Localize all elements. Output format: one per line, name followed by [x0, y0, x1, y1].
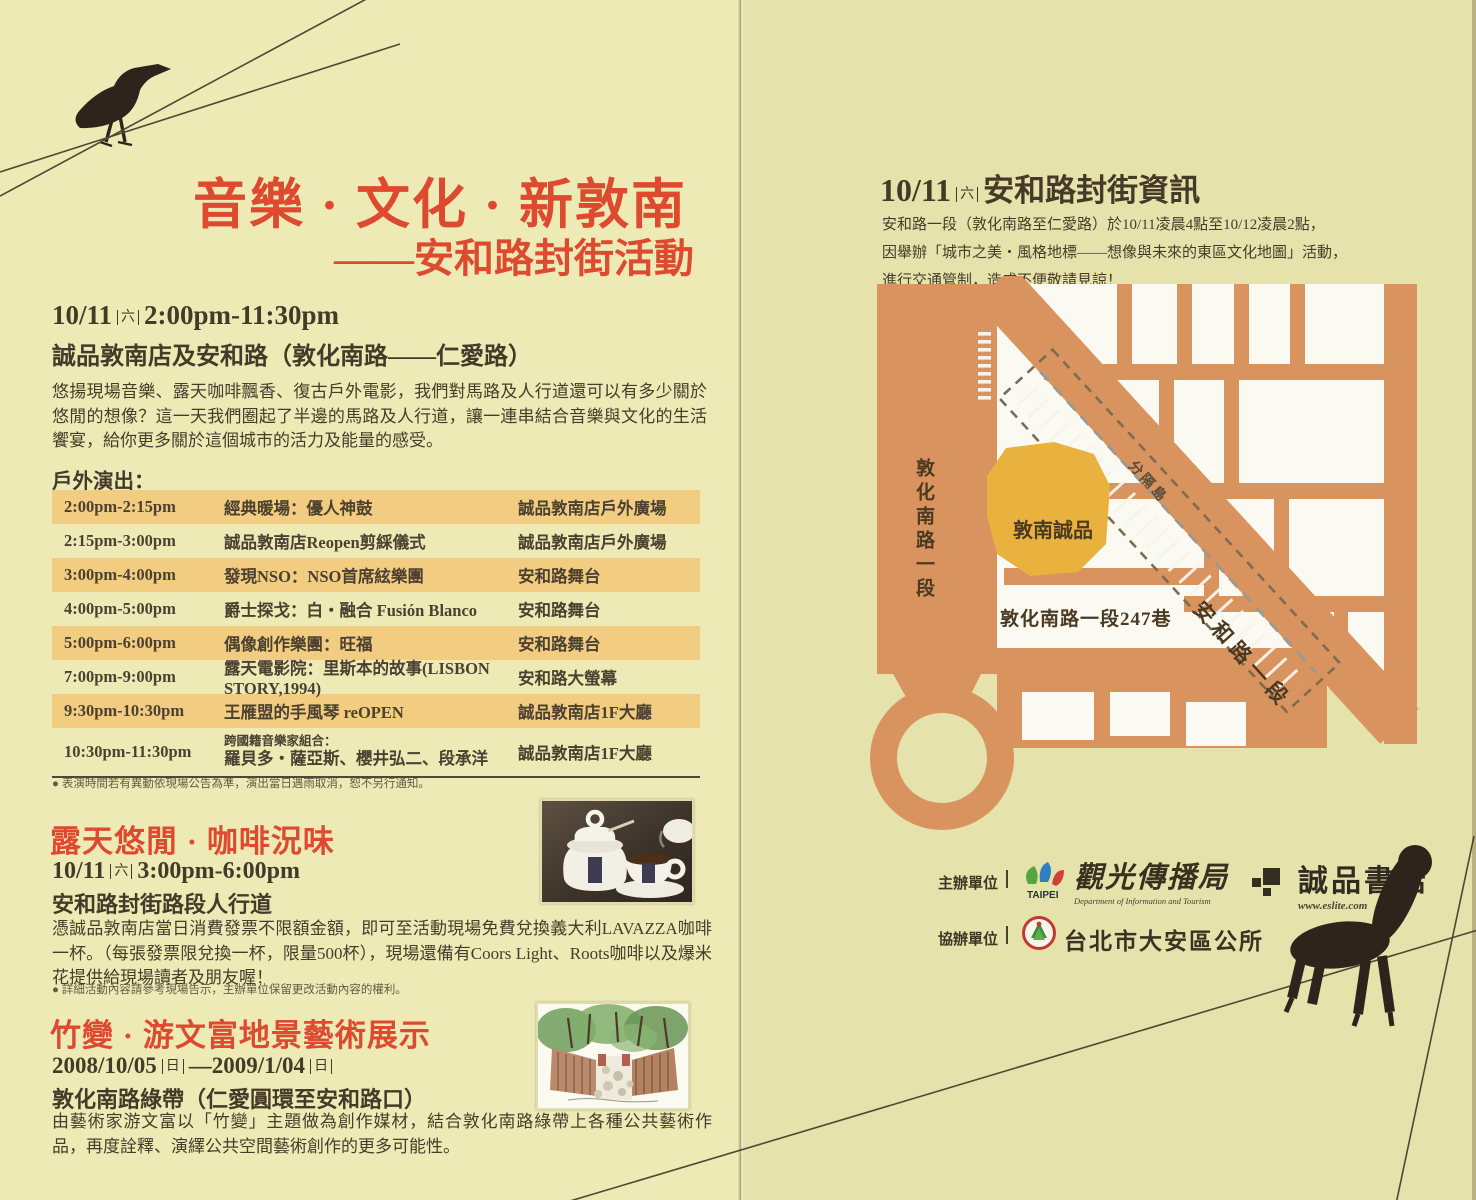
page-fold [738, 0, 744, 1200]
bamboo-artwork-image [536, 1002, 690, 1110]
row-program: 爵士探戈：白・融合 Fusión Blanco [224, 597, 518, 621]
bamboo-date-dash: — [189, 1053, 212, 1078]
row-venue: 安和路舞台 [518, 563, 700, 587]
row-program: 偶像創作樂團：旺福 [224, 631, 518, 655]
row-program: 誠品敦南店Reopen剪綵儀式 [224, 529, 518, 553]
coffee-dateline: 10/11六3:00pm-6:00pm [52, 858, 300, 885]
host2-name: 誠品書店 [1298, 856, 1430, 900]
co-label-divider [1006, 926, 1008, 944]
page-right: 10/11六安和路封街資訊 安和路一段（敦化南路至仁愛路）於10/11凌晨4點至… [742, 0, 1476, 1200]
closure-weekday: 六 [956, 187, 978, 202]
map-building-label: 敦南誠品 [997, 514, 1109, 543]
bamboo-heading: 竹變 · 游文富地景藝術展示 [50, 1010, 431, 1055]
co-organizer-label: 協辦單位 [938, 928, 998, 949]
coffee-time: 3:00pm-6:00pm [137, 858, 300, 884]
event-description: 悠揚現場音樂、露天咖啡飄香、復古戶外電影，我們對馬路及人行道還可以有多少關於悠閒… [52, 380, 707, 454]
row-venue: 安和路舞台 [518, 631, 700, 655]
host2-url: www.eslite.com [1298, 900, 1430, 912]
row-time: 2:15pm-3:00pm [52, 531, 224, 551]
row-program: 經典暖場：優人神鼓 [224, 495, 518, 519]
closure-title: 安和路封街資訊 [983, 173, 1200, 208]
row-time: 5:00pm-6:00pm [52, 633, 224, 653]
closure-info-heading: 10/11六安和路封街資訊 [880, 165, 1200, 210]
host1-name: 觀光傳播局 [1074, 854, 1229, 896]
page-left: 音樂 · 文化 · 新敦南 ——安和路封街活動 10/11六2:00pm-11:… [0, 0, 742, 1200]
bamboo-date-start: 2008/10/05 [52, 1053, 157, 1078]
coffee-weekday: 六 [110, 864, 132, 879]
row-time: 2:00pm-2:15pm [52, 497, 224, 517]
host1-caption: Department of Information and Tourism [1074, 896, 1229, 906]
row-program: 跨國籍音樂家組合： 羅貝多・薩亞斯、櫻井弘二、段承洋 [224, 734, 518, 770]
coffee-footnote: ● 詳細活動內容請參考現場告示，主辦單位保留更改活動內容的權利。 [52, 981, 407, 997]
scan-edge-shadow [1472, 0, 1476, 1200]
table-row: 9:30pm-10:30pm 王雁盟的手風琴 reOPEN 誠品敦南店1F大廳 [52, 694, 700, 728]
host-label-divider [1006, 870, 1008, 888]
table-row: 3:00pm-4:00pm 發現NSO：NSO首席絃樂團 安和路舞台 [52, 558, 700, 592]
schedule-table: 2:00pm-2:15pm 經典暖場：優人神鼓 誠品敦南店戶外廣場 2:15pm… [52, 490, 700, 778]
daan-district-badge [1020, 914, 1058, 952]
schedule-footnote: ● 表演時間若有異動依現場公告為準，演出當日遇雨取消，恕不另行通知。 [52, 775, 430, 791]
map-road-vertical-label: 敦化南路一段 [910, 458, 937, 602]
bamboo-date-end: 2009/1/04 [212, 1053, 305, 1078]
host1-block: 觀光傳播局 Department of Information and Tour… [1074, 854, 1229, 906]
coffee-date: 10/11 [52, 858, 105, 884]
table-row: 10:30pm-11:30pm 跨國籍音樂家組合： 羅貝多・薩亞斯、櫻井弘二、段… [52, 728, 700, 776]
row-program: 王雁盟的手風琴 reOPEN [224, 699, 518, 723]
table-row: 7:00pm-9:00pm 露天電影院：里斯本的故事(LISBON STORY,… [52, 660, 700, 694]
row-venue: 誠品敦南店1F大廳 [518, 699, 700, 723]
bamboo-description: 由藝術家游文富以「竹變」主題做為創作媒材，結合敦化南路綠帶上各種公共藝術作品，再… [52, 1110, 712, 1159]
coffee-venue: 安和路封街路段人行道 [52, 887, 272, 919]
bamboo-weekday-start: 日 [162, 1059, 184, 1074]
event-venue: 誠品敦南店及安和路（敦化南路——仁愛路） [52, 336, 532, 371]
row-program: 發現NSO：NSO首席絃樂團 [224, 563, 518, 587]
coffee-photo [540, 799, 694, 904]
row-time: 4:00pm-5:00pm [52, 599, 224, 619]
row-time: 7:00pm-9:00pm [52, 667, 224, 687]
closure-line1: 安和路一段（敦化南路至仁愛路）於10/11凌晨4點至10/12凌晨2點， [882, 212, 1347, 240]
bamboo-weekday-end: 日 [310, 1059, 332, 1074]
row-venue: 安和路舞台 [518, 597, 700, 621]
taipei-logo-text: TAIPEI [1027, 890, 1059, 901]
host-label: 主辦單位 [938, 872, 998, 893]
row-venue: 誠品敦南店戶外廣場 [518, 529, 700, 553]
closure-date: 10/11 [880, 172, 951, 208]
table-row: 4:00pm-5:00pm 爵士探戈：白・融合 Fusión Blanco 安和… [52, 592, 700, 626]
bamboo-dateline: 2008/10/05日—2009/1/04日 [52, 1053, 337, 1079]
row-time: 10:30pm-11:30pm [52, 742, 224, 762]
row-time: 3:00pm-4:00pm [52, 565, 224, 585]
event-weekday: 六 [117, 310, 139, 325]
coffee-description: 憑誠品敦南店當日消費發票不限額金額，即可至活動現場免費兌換義大利LAVAZZA咖… [52, 917, 712, 991]
coffee-heading: 露天悠閒 · 咖啡況味 [50, 816, 335, 861]
eslite-logo-icon [1250, 864, 1290, 900]
row-venue: 安和路大螢幕 [518, 665, 700, 689]
host2-block: 誠品書店 www.eslite.com [1298, 856, 1430, 912]
event-date: 10/11 [52, 300, 112, 330]
event-dateline: 10/11六2:00pm-11:30pm [52, 300, 339, 331]
table-row: 2:15pm-3:00pm 誠品敦南店Reopen剪綵儀式 誠品敦南店戶外廣場 [52, 524, 700, 558]
row-program-main: 羅貝多・薩亞斯、櫻井弘二、段承洋 [224, 749, 518, 770]
closure-line2: 因舉辦「城市之美・風格地標——想像與未來的東區文化地圖」活動， [882, 240, 1347, 268]
street-closure-map: 敦化南路一段 敦南誠品 敦化南路一段247巷 安和路一段 分隔島 [854, 276, 1424, 851]
brochure-scan: { "left": { "title_line1": "音樂 · 文化 · 新敦… [0, 0, 1476, 1200]
row-program-note: 跨國籍音樂家組合： [224, 734, 518, 749]
map-graphic [854, 276, 1424, 851]
taipei-city-logo: TAIPEI [1020, 858, 1066, 902]
row-time: 9:30pm-10:30pm [52, 701, 224, 721]
row-program: 露天電影院：里斯本的故事(LISBON STORY,1994) [224, 655, 518, 699]
co-organizer-name: 台北市大安區公所 [1064, 922, 1264, 956]
map-lane-label: 敦化南路一段247巷 [1000, 604, 1172, 631]
row-venue: 誠品敦南店戶外廣場 [518, 495, 700, 519]
event-time: 2:00pm-11:30pm [144, 300, 339, 330]
row-venue: 誠品敦南店1F大廳 [518, 740, 700, 764]
table-row: 2:00pm-2:15pm 經典暖場：優人神鼓 誠品敦南店戶外廣場 [52, 490, 700, 524]
crow-on-wire-icon [40, 52, 200, 162]
main-title-line2: ——安和路封街活動 [170, 226, 710, 284]
